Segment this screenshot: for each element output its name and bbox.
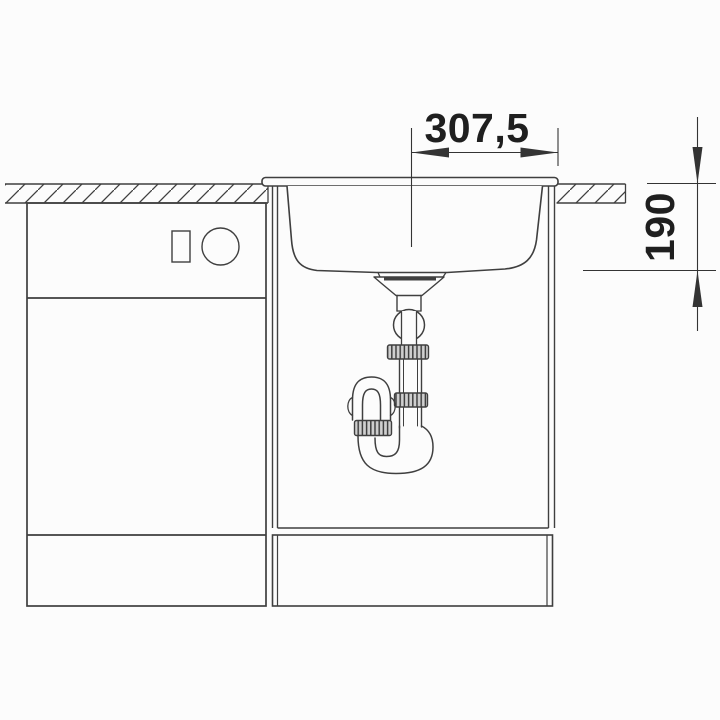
appliance-cabinet <box>27 203 266 606</box>
width-dim-label: 307,5 <box>424 105 529 151</box>
depth-dim-label: 190 <box>637 192 683 262</box>
depth-arrow-bottom <box>693 271 703 308</box>
sink <box>262 178 558 273</box>
siphon-assembly <box>348 273 446 474</box>
depth-arrow-top <box>693 147 703 184</box>
union-ball-channel <box>402 311 417 345</box>
compression-nut-upper <box>388 345 429 359</box>
compression-nut-middle <box>395 393 428 407</box>
appliance-button-rect <box>172 231 190 262</box>
sink-rim <box>262 178 558 187</box>
outlet-bend-outer <box>353 377 391 420</box>
outlet-bend-inner <box>363 389 381 420</box>
drawing-svg: 307,5 190 <box>0 0 720 720</box>
dimension-depth: 190 <box>583 117 716 331</box>
sink-cabinet-plinth <box>273 535 553 606</box>
appliance-knob-circle <box>202 228 239 265</box>
sink-bowl <box>287 186 543 273</box>
compression-nut-outlet <box>355 421 392 436</box>
countertop-right-hatch <box>557 184 626 203</box>
appliance-cabinet-outline <box>27 203 266 606</box>
technical-drawing: 307,5 190 <box>0 0 720 720</box>
dimension-width: 307,5 <box>412 105 559 166</box>
countertop-left-hatch <box>5 184 268 203</box>
